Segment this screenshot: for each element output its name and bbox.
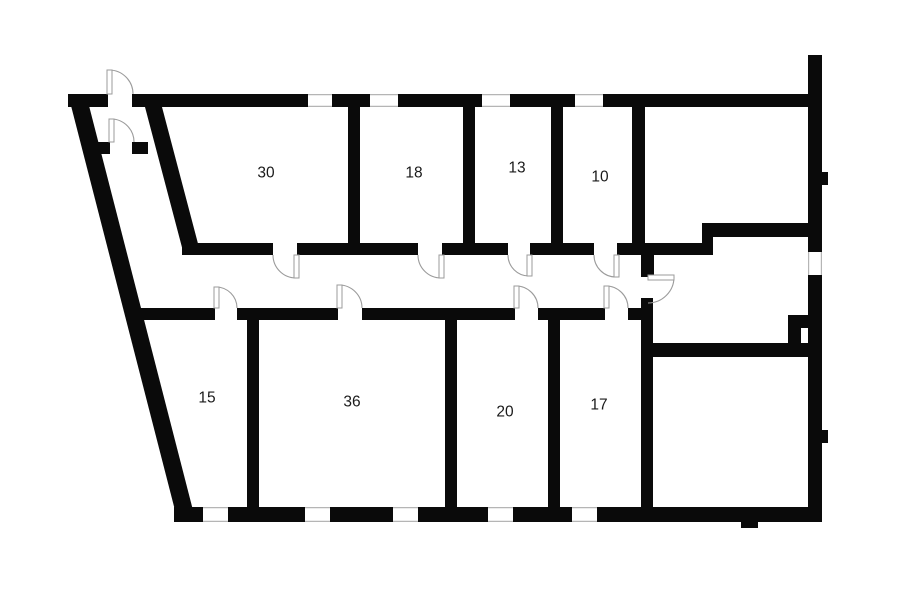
- upper-right-room-bottom-wall: [702, 223, 822, 237]
- bottom-wall-seg-4: [418, 507, 488, 522]
- room-label-36: 36: [343, 394, 360, 411]
- top-wall-seg-2: [132, 94, 308, 107]
- niche-wall-vertical: [788, 315, 801, 345]
- room-label-18: 18: [405, 165, 422, 182]
- room-label-13: 13: [508, 160, 525, 177]
- right-wall-lower: [808, 275, 822, 522]
- right-wall-bump-lower: [819, 430, 828, 443]
- right-wall-top-stub: [808, 55, 822, 94]
- divider-room13-room10: [551, 107, 563, 243]
- corridor-lower-wall-seg-2: [237, 308, 338, 320]
- window-bottom-1: [203, 507, 228, 522]
- door-room-17-leaf: [604, 286, 609, 308]
- bottom-wall-seg-3: [330, 507, 393, 522]
- vestibule-wall-seg-2: [132, 142, 148, 154]
- bottom-right-room-top-wall: [653, 343, 822, 357]
- door-room-18-leaf: [439, 255, 444, 278]
- bottom-right-room-left-wall: [641, 298, 653, 512]
- window-top-3: [482, 94, 510, 107]
- corridor-lower-wall-seg-3: [362, 308, 515, 320]
- door-room-36-leaf: [337, 285, 342, 308]
- room-label-10: 10: [591, 169, 609, 186]
- room-label-30: 30: [257, 165, 275, 182]
- top-wall-seg-5: [510, 94, 575, 107]
- door-room-10-leaf: [614, 255, 619, 277]
- top-wall-seg-1: [68, 94, 108, 107]
- room-label-17: 17: [590, 397, 607, 414]
- corridor-upper-wall-seg-5: [617, 243, 713, 255]
- bottom-wall-pier: [741, 507, 758, 528]
- divider-room10-right-room: [632, 107, 645, 243]
- right-wall-bump-upper: [819, 172, 828, 185]
- corridor-upper-wall-seg-1: [182, 243, 273, 255]
- corridor-upper-wall-seg-2: [297, 243, 418, 255]
- window-bottom-4: [488, 507, 513, 522]
- divider-room15-room36: [247, 320, 259, 507]
- bottom-wall-seg-5: [513, 507, 572, 522]
- window-top-4: [575, 94, 603, 107]
- divider-room18-room13: [463, 107, 475, 243]
- corridor-lower-wall-seg-5: [628, 308, 642, 320]
- door-room-15-leaf: [214, 287, 219, 308]
- corridor-end-door-stub: [641, 255, 654, 277]
- divider-room20-room17: [548, 320, 560, 507]
- door-room-20-leaf: [514, 286, 519, 308]
- floor-plan-svg: 3018131015362017: [0, 0, 900, 604]
- window-bottom-2: [305, 507, 330, 522]
- top-wall-seg-4: [398, 94, 482, 107]
- door-corridor-end-leaf: [648, 275, 674, 280]
- divider-room30-room18: [348, 107, 360, 243]
- corridor-lower-wall-seg-4: [538, 308, 605, 320]
- divider-room36-room20: [445, 320, 457, 507]
- room-label-20: 20: [496, 404, 514, 421]
- window-top-2: [370, 94, 398, 107]
- opening-right-wall: [808, 252, 822, 275]
- top-wall-seg-3: [332, 94, 370, 107]
- window-bottom-3: [393, 507, 418, 522]
- door-room-30-leaf: [294, 255, 299, 278]
- door-room-13-leaf: [527, 255, 532, 276]
- window-top-1: [308, 94, 332, 107]
- bottom-wall-seg-2: [228, 507, 305, 522]
- corridor-upper-wall-seg-3: [442, 243, 508, 255]
- door-vestibule-inner-leaf: [109, 119, 114, 142]
- bottom-wall-seg-1: [174, 507, 203, 522]
- corridor-upper-wall-seg-4: [530, 243, 594, 255]
- top-wall-seg-6: [603, 94, 822, 107]
- corridor-lower-wall-seg-1: [133, 308, 215, 320]
- room-label-15: 15: [198, 390, 215, 407]
- window-bottom-5: [572, 507, 597, 522]
- floor-plan: 3018131015362017: [0, 0, 900, 604]
- vestibule-wall-seg-1: [88, 142, 110, 154]
- door-entrance-leaf: [107, 70, 112, 94]
- bottom-wall-seg-6: [597, 507, 822, 522]
